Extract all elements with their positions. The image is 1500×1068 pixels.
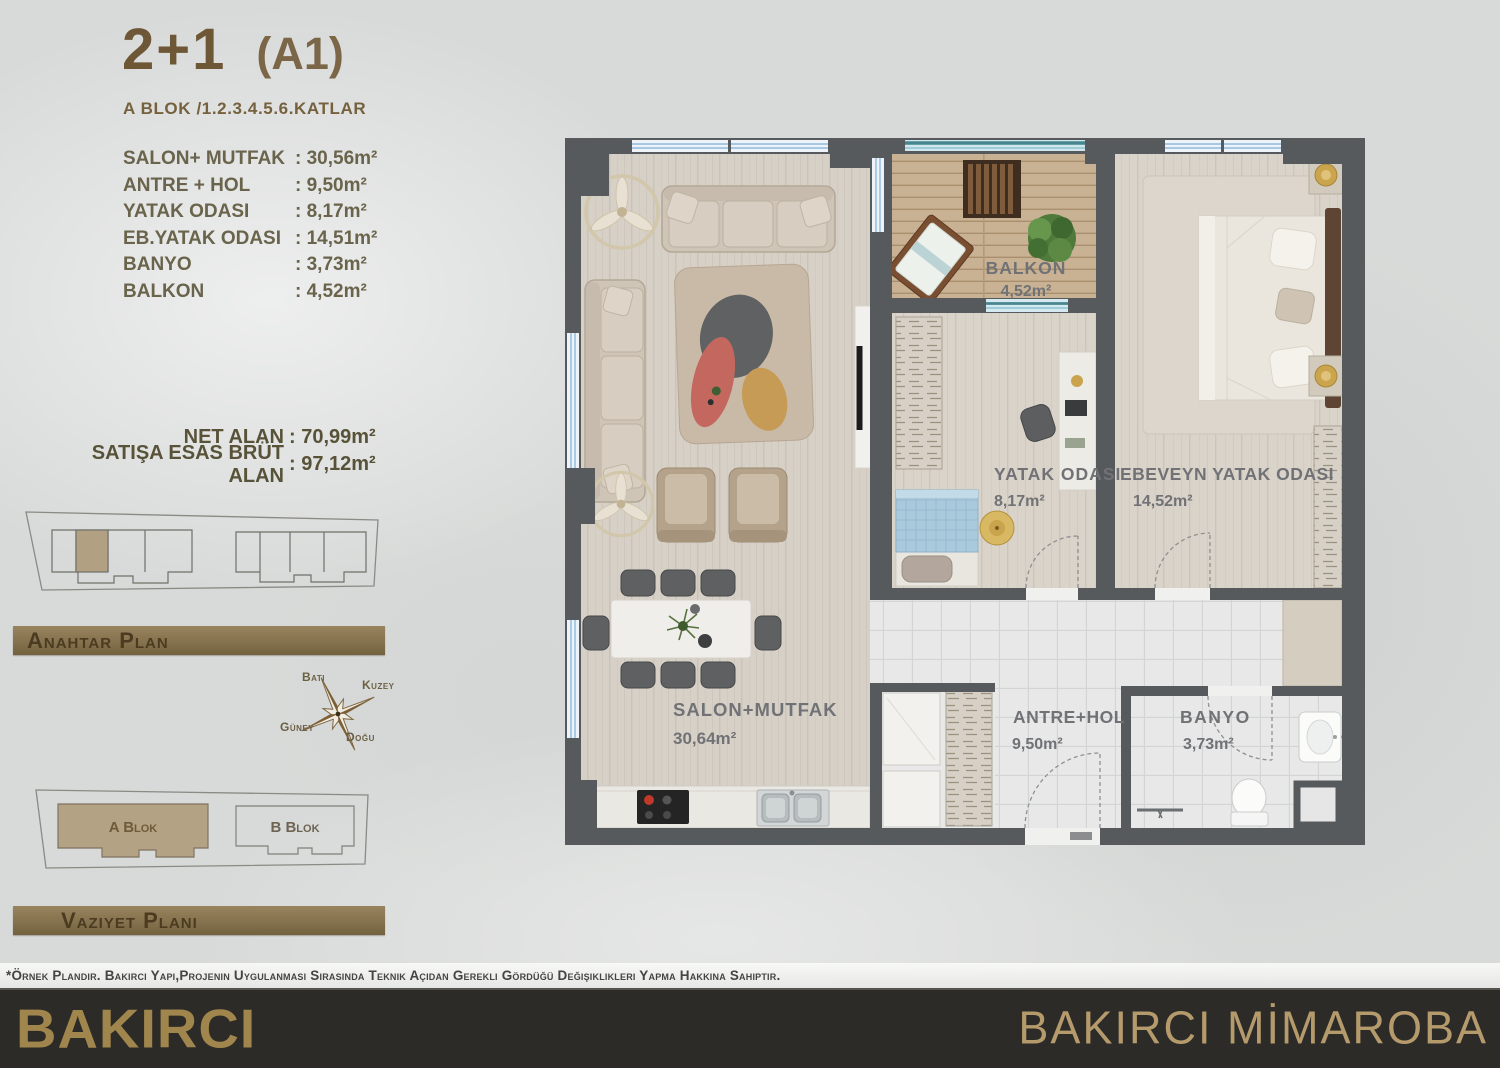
area-row-banyo: BANYO : 3,73m²: [123, 252, 377, 279]
area-yatak: 8,17m²: [994, 493, 1045, 510]
wardrobe-ebeveyn: [1314, 426, 1342, 588]
label-ebeveyn: EBEVEYN YATAK ODASI: [1120, 464, 1334, 484]
area-value: : 8,17m²: [295, 201, 367, 223]
net-area-value: : 70,99m²: [289, 426, 376, 449]
hall-cabinets: [883, 691, 992, 827]
compass-west-label: Batı: [302, 670, 325, 684]
area-label: YATAK ODASI: [123, 201, 295, 223]
balcony-wood-mat: [963, 160, 1021, 218]
highlighted-unit-a1: [76, 530, 108, 572]
area-value: : 14,51m²: [295, 228, 377, 250]
page-title: 2+1(A1): [122, 16, 344, 83]
area-row-ebyatak: EB.YATAK ODASI : 14,51m²: [123, 226, 377, 253]
area-value: : 3,73m²: [295, 254, 367, 276]
floor-hall-upper: [870, 600, 1342, 686]
room-area-list: SALON+ MUTFAK : 30,56m² ANTRE + HOL : 9,…: [123, 146, 377, 305]
label-antre: ANTRE+HOL: [1013, 707, 1125, 727]
brochure-page: 2+1(A1) A BLOK /1.2.3.4.5.6.KATLAR SALON…: [0, 0, 1500, 1068]
balcony-plant-icon: [1028, 214, 1076, 262]
label-balkon: BALKON: [986, 258, 1067, 278]
footer-bar: BAKIRCI BAKIRCI MİMAROBA: [0, 990, 1500, 1068]
key-plan-caption-bar: Anahtar Plan: [13, 626, 385, 655]
kitchen-counter: [583, 786, 870, 828]
tv: [857, 346, 863, 430]
area-row-salon: SALON+ MUTFAK : 30,56m²: [123, 146, 377, 173]
label-salon: SALON+MUTFAK: [673, 699, 838, 720]
gross-area-value: : 97,12m²: [289, 453, 376, 476]
compass-east-label: Doğu: [346, 730, 375, 744]
area-value: : 4,52m²: [295, 281, 367, 303]
compass-north-label: Kuzey: [362, 678, 395, 692]
site-plan-caption: Vazıyet Planı: [13, 908, 198, 934]
area-salon: 30,64m²: [673, 729, 737, 748]
gold-side-table: [980, 511, 1014, 545]
brand-logo-left: BAKIRCI: [16, 997, 256, 1061]
area-value: : 9,50m²: [295, 175, 367, 197]
block-floors-subtitle: A BLOK /1.2.3.4.5.6.KATLAR: [123, 99, 366, 119]
label-banyo: BANYO: [1180, 707, 1251, 727]
brand-logo-right: BAKIRCI MİMAROBA: [1018, 1001, 1488, 1054]
area-row-yatak: YATAK ODASI : 8,17m²: [123, 199, 377, 226]
shaft: [1297, 784, 1339, 825]
unit-type-title: 2+1: [122, 17, 226, 82]
area-row-balkon: BALKON : 4,52m²: [123, 279, 377, 306]
gross-area-label: SATIŞA ESAS BRÜT ALAN: [38, 442, 284, 488]
storage-block: [1283, 600, 1342, 686]
b-blok-label: B Blok: [270, 819, 319, 836]
balcony-door: [984, 299, 1070, 312]
pillow: [1269, 227, 1318, 271]
area-label: BANYO: [123, 254, 295, 276]
key-plan-caption: Anahtar Plan: [13, 628, 169, 654]
shoe-wardrobe: [946, 691, 992, 826]
kitchen-sink: [757, 790, 829, 826]
wardrobe-yatak: [896, 317, 942, 469]
area-totals: NET ALAN : 70,99m² SATIŞA ESAS BRÜT ALAN…: [38, 424, 376, 478]
area-label: BALKON: [123, 281, 295, 303]
site-plan-caption-bar: Vazıyet Planı: [13, 906, 385, 935]
area-value: : 30,56m²: [295, 148, 377, 170]
a-blok-label: A Blok: [109, 819, 158, 836]
area-label: SALON+ MUTFAK: [123, 148, 295, 170]
disclaimer-text: *Örnek Plandır. Bakırcı Yapı,Projenin Uy…: [6, 968, 780, 983]
area-label: EB.YATAK ODASI: [123, 228, 295, 250]
single-bed: [896, 490, 978, 586]
disclaimer-bar: *Örnek Plandır. Bakırcı Yapı,Projenin Uy…: [0, 963, 1500, 990]
cooktop: [637, 790, 689, 824]
accent-pillow: [1274, 287, 1315, 325]
label-yatak: YATAK ODASI: [994, 464, 1121, 484]
area-banyo: 3,73m²: [1183, 736, 1234, 753]
pillow: [902, 556, 952, 582]
gross-area-row: SATIŞA ESAS BRÜT ALAN : 97,12m²: [38, 451, 376, 478]
toilet: [1231, 779, 1268, 826]
site-plan-drawing: A Blok B Blok: [28, 778, 378, 890]
unit-code: (A1): [256, 28, 344, 79]
area-antre: 9,50m²: [1012, 736, 1063, 753]
area-ebeveyn: 14,52m²: [1133, 493, 1193, 510]
area-balkon: 4,52m²: [1001, 283, 1052, 300]
compass-rose: Batı Kuzey Güney Doğu: [278, 664, 408, 764]
floor-plan: BALKON 4,52m² YATAK ODASI 8,17m² EBEVEYN…: [565, 138, 1365, 845]
tv-unit: [855, 306, 872, 468]
compass-south-label: Güney: [280, 720, 314, 734]
entrance-door-symbol: [1070, 832, 1092, 840]
nightstand-bottom: [1309, 356, 1343, 396]
area-row-antre: ANTRE + HOL : 9,50m²: [123, 173, 377, 200]
sofa-top: [662, 186, 835, 252]
living-rug: [674, 264, 814, 445]
area-label: ANTRE + HOL: [123, 175, 295, 197]
